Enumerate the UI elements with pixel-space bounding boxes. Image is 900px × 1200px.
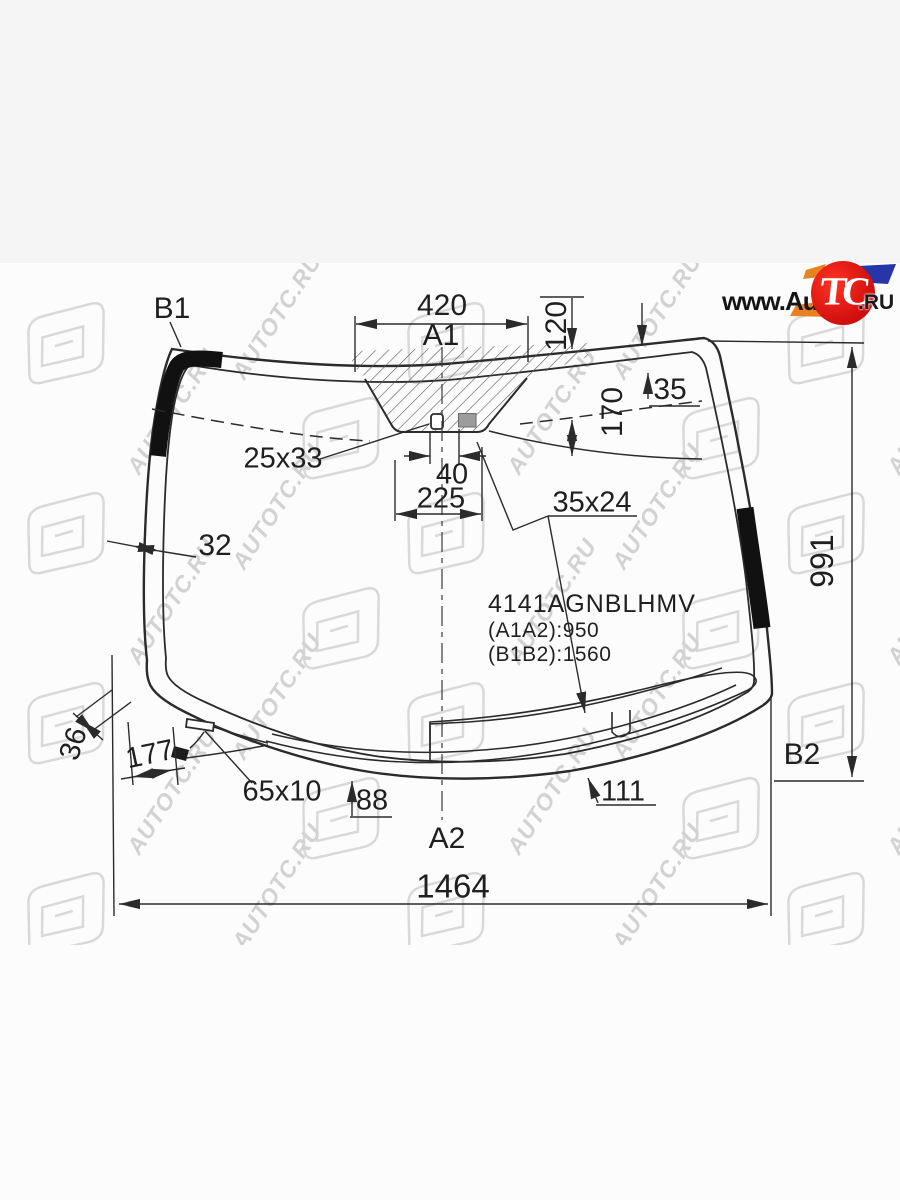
band-right <box>745 508 762 628</box>
connector-wire <box>190 732 204 748</box>
sensor-65x10-rect <box>186 719 214 731</box>
part-length-a1a2: (A1A2):950 <box>488 619 599 643</box>
dim-32-tail-right <box>159 551 196 557</box>
dim-32-label: 32 <box>198 531 231 561</box>
point-a1-label: A1 <box>423 321 460 351</box>
sensor-35x24-label: 35x24 <box>552 489 631 518</box>
dim-88-label: 88 <box>356 787 388 816</box>
dim-177-tail-left <box>121 777 133 779</box>
logo-www-prefix: www. <box>722 286 785 316</box>
windshield-diagram-page: { "logo": { "prefix": "www.", "name": "A… <box>0 0 900 1200</box>
point-b1-label: B1 <box>154 294 191 324</box>
wire-to-strip <box>214 727 268 743</box>
dim-991-ext-top <box>708 341 864 343</box>
part-length-b1b2: (B1B2):1560 <box>488 643 611 667</box>
band-top-left <box>158 358 222 456</box>
leader-25x33 <box>320 424 429 459</box>
dim-36-tail-b <box>94 732 103 740</box>
point-a2-label: A2 <box>429 824 466 854</box>
dim-177-tail-right <box>172 768 185 770</box>
point-b2-label: B2 <box>784 740 821 770</box>
sensor-65x10-label: 65x10 <box>242 778 321 807</box>
sensor-25x33-label: 25x33 <box>243 445 322 474</box>
windshield-drawing <box>0 0 900 1200</box>
sensor-35x24-rect <box>459 414 477 428</box>
sensor-65x10-group <box>171 719 268 761</box>
dim-111-label: 111 <box>601 778 645 807</box>
dim-1464-label: 1464 <box>416 870 489 903</box>
dim-111-arrow <box>588 778 598 803</box>
dim-420-label: 420 <box>417 291 467 321</box>
strip-tab <box>612 710 630 737</box>
leader-35x24-to-rect <box>477 442 548 530</box>
dim-1464-ext-left <box>112 655 114 916</box>
dashed-band-edge-left <box>152 409 370 441</box>
dim-36-ext-b <box>92 702 131 731</box>
dim-120-label: 120 <box>542 301 572 351</box>
dim-32-arrows <box>133 546 159 551</box>
sensor-25x33-rect <box>431 414 443 429</box>
dim-32-tail-left <box>107 541 133 546</box>
logo-ru-suffix: .RU <box>858 291 894 315</box>
leader-b1 <box>170 322 181 347</box>
dim-35-label: 35 <box>653 375 686 405</box>
dim-36-ext-a <box>76 690 112 717</box>
part-number: 4141AGNBLHMV <box>488 590 696 619</box>
dim-991-label: 991 <box>806 534 838 587</box>
dim-170-label: 170 <box>598 387 628 437</box>
dim-225-label: 225 <box>417 485 465 514</box>
